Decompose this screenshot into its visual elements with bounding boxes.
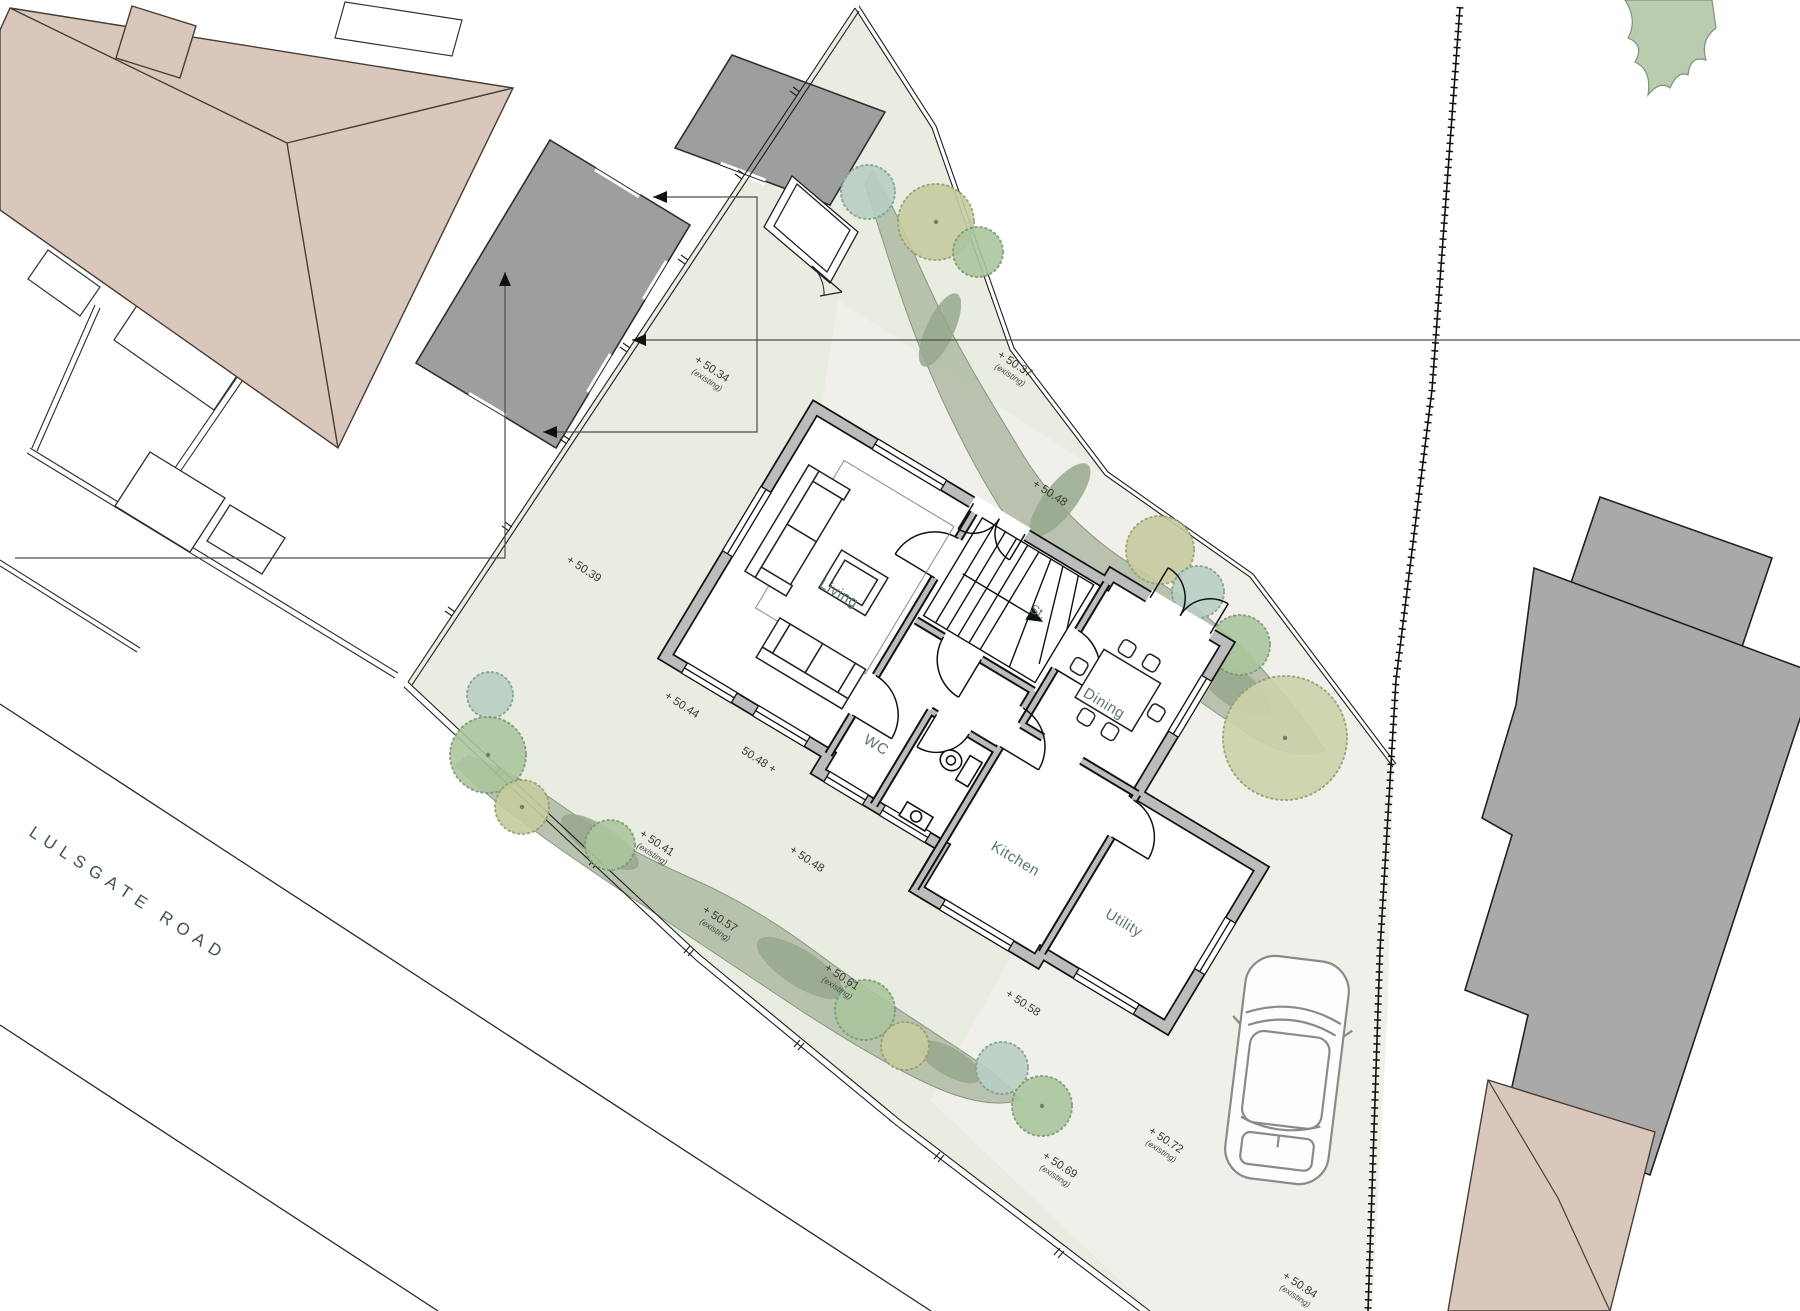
road-label: LULSGATE ROAD bbox=[26, 822, 231, 965]
neighbor-buildings-east bbox=[1465, 497, 1800, 1175]
existing-house-roof bbox=[0, 2, 513, 448]
neighbor-building-east-2 bbox=[1465, 568, 1800, 1175]
corner-vegetation bbox=[1625, 0, 1716, 95]
site-plan-page: LULSGATE ROAD bbox=[0, 0, 1800, 1311]
site-plan-drawing: LULSGATE ROAD bbox=[0, 0, 1800, 1311]
